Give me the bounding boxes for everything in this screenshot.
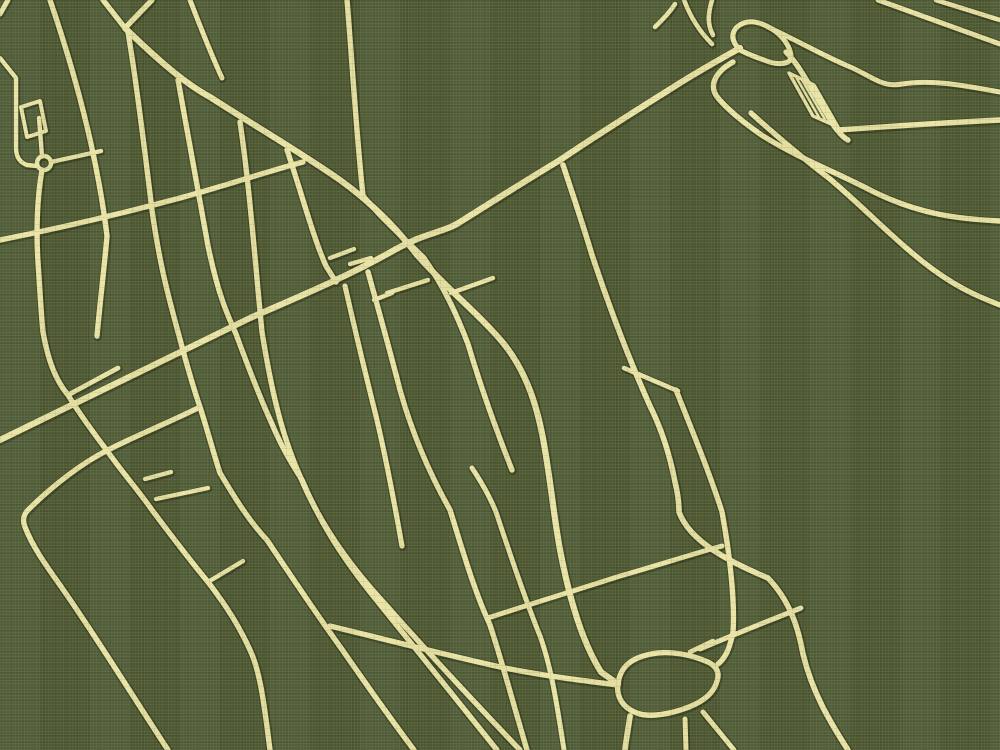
road-x4-cross [700, 608, 801, 649]
road-roundabout [37, 156, 51, 170]
road-w1-street [37, 170, 270, 750]
road-pond-stub-s2 [703, 712, 734, 750]
road-casing-w1-street [38, 171, 271, 750]
road-g6-street [345, 286, 402, 546]
road-b-street [347, 0, 363, 196]
map-poster [0, 0, 1000, 750]
road-v-arm-right [125, 0, 152, 28]
road-casing-w2-street [51, 1, 108, 337]
map-canvas[interactable] [0, 0, 1000, 750]
road-w2-street [50, 0, 107, 336]
road-rung-rb [451, 278, 493, 293]
road-pond-stub-s1 [685, 719, 686, 750]
road-stub-up [39, 118, 42, 156]
road-short-top [190, 0, 222, 78]
road-corner-c1 [878, 0, 1000, 44]
road-fills [0, 0, 1000, 750]
road-rung-rc [624, 368, 678, 391]
road-corner-c2 [936, 0, 1000, 20]
road-casings [1, 1, 1000, 750]
road-v-arm-left [103, 0, 125, 28]
road-spur-w1 [208, 561, 243, 582]
